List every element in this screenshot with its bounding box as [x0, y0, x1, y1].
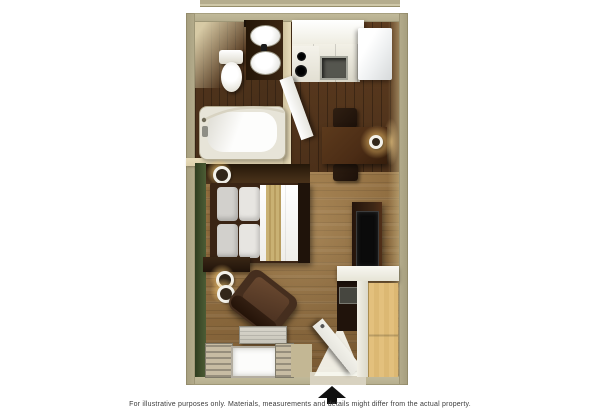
wall-right	[399, 13, 408, 385]
vanity-sink-lower	[250, 51, 281, 75]
table-lamp	[369, 135, 383, 149]
floorplan	[0, 0, 600, 420]
kitchen-sink	[320, 56, 348, 80]
bed-pillow	[239, 187, 260, 221]
bathtub-faucet	[202, 126, 208, 137]
kitchenette-counter	[337, 266, 399, 281]
kitchen-counter	[292, 20, 364, 44]
wall-left	[186, 13, 195, 385]
dining-chair-south	[333, 164, 358, 181]
kitchenette-counter-edge	[357, 281, 368, 377]
window-curtain-left	[205, 343, 233, 378]
kitchenette-cabinet	[368, 283, 398, 377]
window	[231, 346, 279, 378]
entry-side-wall	[291, 344, 312, 377]
bed-pillow	[239, 224, 260, 258]
bed-footboard	[298, 183, 310, 263]
ac-unit	[239, 326, 287, 344]
tv	[356, 211, 379, 267]
bed-pillow	[217, 187, 238, 221]
bed-runner-stripe	[266, 185, 281, 261]
door-knob	[320, 323, 326, 329]
disclaimer-text: For illustrative purposes only. Material…	[0, 401, 600, 408]
dining-chair-north	[333, 108, 357, 128]
stove-cooktop	[292, 46, 319, 82]
toilet	[221, 62, 242, 92]
stove-burner	[297, 52, 306, 61]
bed-pillow	[217, 224, 238, 258]
shower-rod	[198, 96, 288, 126]
floorplan-image: For illustrative purposes only. Material…	[0, 0, 600, 420]
stove-burner	[295, 65, 307, 77]
refrigerator	[358, 28, 392, 80]
wall-sconce	[213, 166, 231, 184]
